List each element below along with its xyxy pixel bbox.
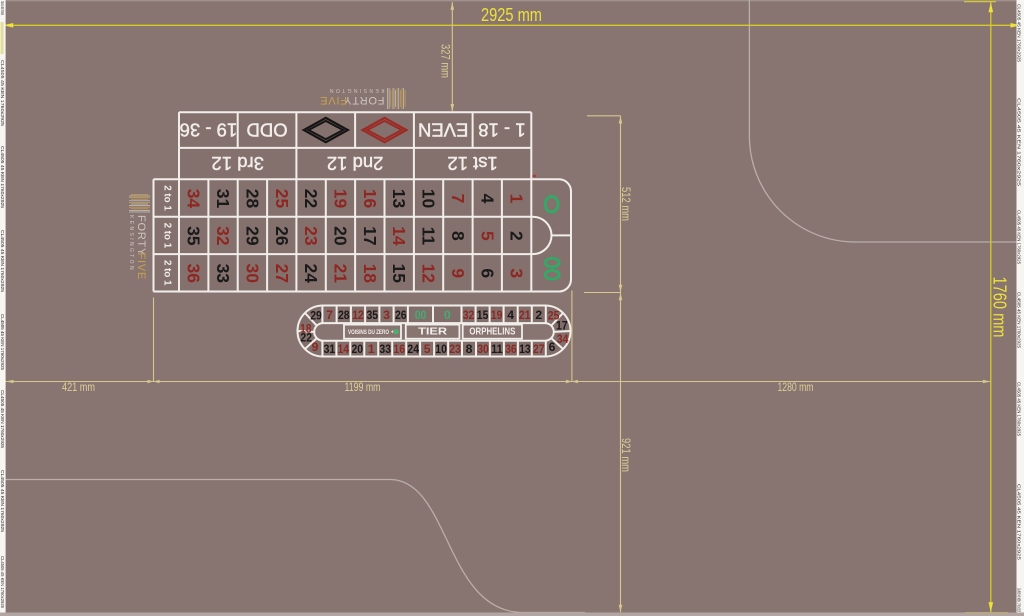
svg-text:36: 36 [184,264,204,284]
svg-text:10: 10 [435,342,447,356]
svg-text:13: 13 [519,342,531,356]
svg-text:FORTY: FORTY [135,215,147,256]
svg-text:9: 9 [312,340,319,354]
svg-text:CL4505 45 KEN 1760x2925: CL4505 45 KEN 1760x2925 [1017,382,1022,437]
svg-text:22: 22 [300,331,312,345]
svg-text:0: 0 [444,308,451,322]
svg-text:5: 5 [424,342,431,356]
svg-text:8: 8 [466,342,473,356]
svg-text:CL4505 45 KEN 1760x2925: CL4505 45 KEN 1760x2925 [0,314,5,371]
svg-text:CL4505 45 KEN 1760x2925: CL4505 45 KEN 1760x2925 [1017,4,1022,63]
svg-text:31: 31 [213,189,233,209]
svg-text:CL4505 45 KEN 1760x2925: CL4505 45 KEN 1760x2925 [1017,588,1022,612]
svg-text:2925 mm: 2925 mm [481,4,542,25]
svg-text:23: 23 [301,226,321,246]
svg-text:1280 mm: 1280 mm [778,382,814,394]
svg-text:35: 35 [184,226,204,246]
svg-text:CL4505 45 KEN 1760x2925: CL4505 45 KEN 1760x2925 [0,230,5,293]
svg-text:1199 mm: 1199 mm [345,382,381,394]
svg-text:4: 4 [507,308,514,322]
svg-text:EVEN: EVEN [418,120,468,141]
svg-text:30: 30 [477,342,489,356]
svg-text:19: 19 [331,189,351,209]
svg-text:26: 26 [395,308,407,322]
svg-text:29: 29 [242,226,262,246]
svg-text:TIER: TIER [418,327,448,338]
svg-text:32: 32 [463,308,475,322]
svg-text:FIVE: FIVE [135,253,147,281]
svg-text:CL4505 45 KEN 1760x2925: CL4505 45 KEN 1760x2925 [0,60,5,127]
svg-text:27: 27 [272,264,292,283]
svg-text:FORTY: FORTY [343,94,384,106]
svg-text:3rd 12: 3rd 12 [211,153,263,174]
svg-text:ODD: ODD [247,120,288,141]
svg-text:421 mm: 421 mm [62,382,95,394]
svg-text:35: 35 [367,308,379,322]
svg-text:1: 1 [507,194,527,204]
svg-text:21: 21 [519,308,531,322]
svg-text:KENSINGTON: KENSINGTON [128,215,134,272]
svg-text:20: 20 [331,226,351,246]
svg-text:34: 34 [184,189,204,209]
svg-text:34: 34 [557,332,569,346]
svg-text:ORPHELINS: ORPHELINS [469,327,515,338]
svg-text:KENSINGTON: KENSINGTON [328,87,385,93]
svg-text:21: 21 [331,264,351,284]
svg-text:3: 3 [383,308,390,322]
svg-text:24: 24 [407,342,419,356]
svg-text:24: 24 [301,264,321,284]
svg-text:2 to 1: 2 to 1 [161,223,172,249]
svg-text:CL4505 45 KEN 1760x2925: CL4505 45 KEN 1760x2925 [0,556,5,609]
svg-text:29: 29 [310,309,322,323]
svg-text:33: 33 [379,342,391,356]
svg-text:16: 16 [393,342,405,356]
svg-text:19: 19 [491,308,503,322]
svg-text:28: 28 [338,308,350,322]
svg-text:31: 31 [324,342,336,356]
svg-text:FIVE: FIVE [319,94,347,106]
svg-text:CL4505 45 KEN 1760x2925: CL4505 45 KEN 1760x2925 [0,146,5,209]
svg-text:18: 18 [360,264,380,284]
svg-text:13: 13 [389,189,409,209]
svg-text:36: 36 [505,342,517,356]
svg-text:15: 15 [477,308,489,322]
svg-text:+: + [391,329,394,335]
svg-text:9: 9 [448,268,468,278]
svg-text:4: 4 [477,194,497,204]
svg-text:28: 28 [242,189,262,209]
svg-text:12: 12 [419,264,439,284]
svg-text:26: 26 [272,226,292,246]
svg-text:CL4505 45 KEN 1760x2925: CL4505 45 KEN 1760x2925 [1017,98,1022,187]
svg-text:2nd 12: 2nd 12 [327,153,384,174]
svg-text:14: 14 [389,226,409,246]
svg-text:17: 17 [556,319,568,333]
svg-text:27: 27 [533,342,545,356]
svg-text:921 mm: 921 mm [619,438,631,472]
svg-text:1st 12: 1st 12 [447,153,497,174]
svg-text:CL4505 45 KEN 1760x2925: CL4505 45 KEN 1760x2925 [1017,292,1022,349]
svg-text:19 - 36: 19 - 36 [180,120,238,141]
svg-text:22: 22 [301,189,321,209]
svg-text:20: 20 [352,342,364,356]
svg-text:CL4505 45 KEN 1760x2925: CL4505 45 KEN 1760x2925 [0,470,5,533]
svg-text:327 mm: 327 mm [439,44,451,78]
svg-text:CL4505 45 KEN 1760x2925: CL4505 45 KEN 1760x2925 [0,390,5,449]
svg-text:25: 25 [272,189,292,209]
svg-text:2: 2 [507,231,527,241]
svg-text:8: 8 [448,231,468,241]
svg-text:CL4505 45 KEN 1760x2925: CL4505 45 KEN 1760x2925 [1017,210,1022,265]
svg-text:6: 6 [549,340,556,354]
svg-text:11: 11 [491,342,503,356]
svg-text:16: 16 [360,189,380,209]
svg-text:2 to 1: 2 to 1 [161,260,172,286]
svg-text:30: 30 [242,264,262,284]
svg-text:17: 17 [360,226,380,245]
svg-text:1: 1 [368,342,375,356]
svg-text:33: 33 [213,264,233,284]
svg-text:14: 14 [338,342,350,356]
svg-text:2 to 1: 2 to 1 [161,185,172,211]
svg-text:3: 3 [507,268,527,278]
svg-text:7: 7 [448,194,468,204]
svg-text:23: 23 [449,342,461,356]
svg-text:CL4505 45 KEN 1760x2925: CL4505 45 KEN 1760x2925 [0,1,5,15]
svg-text:CL4505 45 KEN 1760x2925: CL4505 45 KEN 1760x2925 [1017,484,1022,561]
svg-text:2: 2 [535,308,542,322]
svg-text:1 - 18: 1 - 18 [478,120,525,141]
svg-text:15: 15 [389,264,409,284]
svg-text:1760 mm: 1760 mm [990,277,1011,338]
svg-text:11: 11 [419,227,439,246]
svg-text:6: 6 [477,268,497,278]
svg-text:512 mm: 512 mm [619,187,631,221]
svg-text:7: 7 [326,308,333,322]
svg-text:VOISINS DU ZERO: VOISINS DU ZERO [348,329,389,336]
svg-text:00: 00 [415,308,427,322]
svg-text:12: 12 [352,308,364,322]
svg-text:5: 5 [477,231,497,241]
svg-text:32: 32 [213,226,233,246]
svg-text:10: 10 [419,189,439,209]
